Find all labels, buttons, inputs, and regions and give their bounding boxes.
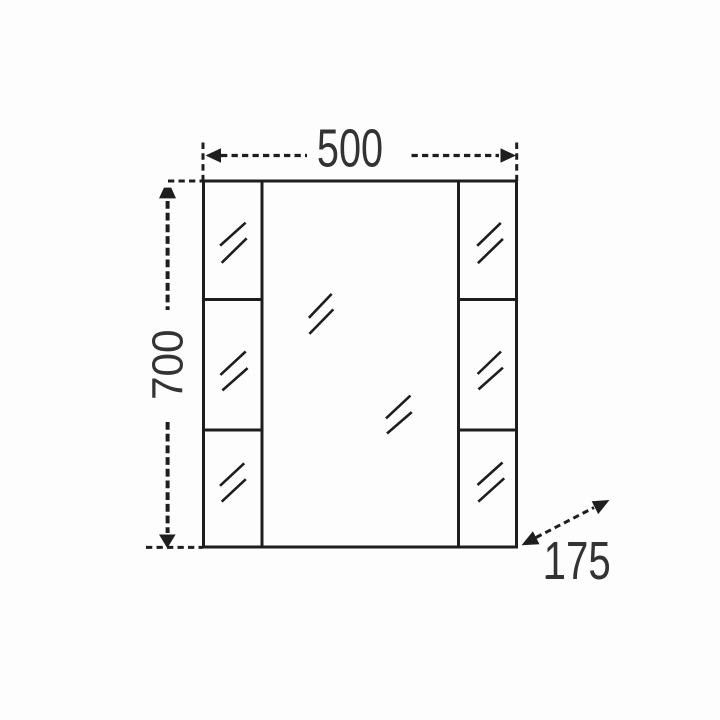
svg-text:175: 175 — [544, 531, 611, 591]
svg-text:700: 700 — [144, 329, 193, 399]
svg-text:500: 500 — [317, 118, 383, 178]
